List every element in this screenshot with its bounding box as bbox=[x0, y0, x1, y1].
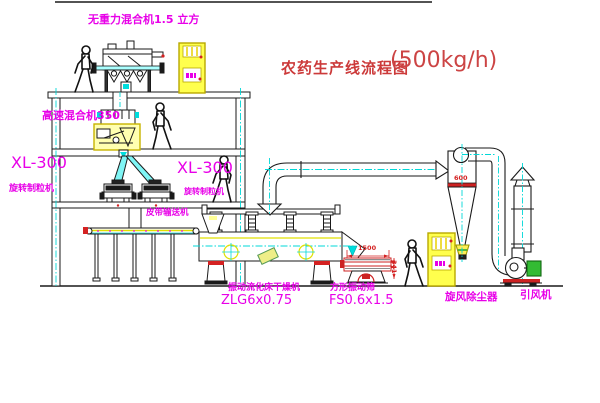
fluid-bed-dryer bbox=[199, 205, 365, 284]
label-dryer-model: ZLG6x0.75 bbox=[221, 294, 292, 308]
discharge-chute bbox=[129, 208, 141, 228]
label-granulator-right-name: 旋转制粒机 bbox=[184, 188, 224, 196]
label-belt-conveyor: 皮带输送机 bbox=[146, 209, 189, 218]
control-cabinet-top bbox=[179, 43, 205, 93]
belt-conveyor bbox=[83, 227, 199, 281]
dimension-cyclone-diameter: 600 bbox=[454, 175, 468, 182]
diagram-title-capacity: (500kg/h) bbox=[390, 48, 497, 73]
y-splitter-chute bbox=[112, 156, 161, 184]
red-indicator-dot bbox=[449, 265, 452, 268]
person-figure-ground bbox=[405, 240, 423, 286]
gravity-free-mixer bbox=[92, 41, 165, 92]
person-figure-roof bbox=[75, 46, 93, 92]
induced-draft-fan bbox=[500, 248, 542, 286]
label-fan: 引风机 bbox=[520, 290, 552, 301]
label-screen-model: FS0.6x1.5 bbox=[329, 294, 394, 308]
dimension-screen-length: 1500 bbox=[358, 245, 376, 252]
red-indicator-dot bbox=[200, 56, 203, 59]
control-cabinet-right bbox=[428, 233, 455, 286]
exhaust-duct bbox=[258, 158, 446, 215]
diagram-canvas: 农药生产线流程图 (500kg/h) 无重力混合机1.5 立方 高速混合机350… bbox=[0, 0, 600, 403]
feed-chute-upper bbox=[113, 92, 127, 110]
red-indicator-dot bbox=[199, 78, 202, 81]
label-cyclone: 旋风除尘器 bbox=[445, 292, 498, 303]
label-granulator-left-name: 旋转制粒机 bbox=[9, 185, 54, 194]
label-gravity-mixer: 无重力混合机1.5 立方 bbox=[88, 14, 199, 26]
red-indicator-dot bbox=[450, 240, 453, 243]
dimension-screen-height: 341 bbox=[390, 260, 397, 274]
label-granulator-right-model: XL-300 bbox=[177, 160, 233, 177]
red-marker-dot bbox=[161, 54, 164, 57]
label-granulator-left-model: XL-300 bbox=[11, 155, 67, 172]
label-high-speed-mixer: 高速混合机350 bbox=[42, 110, 120, 122]
person-figure-floor2 bbox=[153, 103, 171, 149]
conveyor-drive bbox=[83, 227, 88, 234]
